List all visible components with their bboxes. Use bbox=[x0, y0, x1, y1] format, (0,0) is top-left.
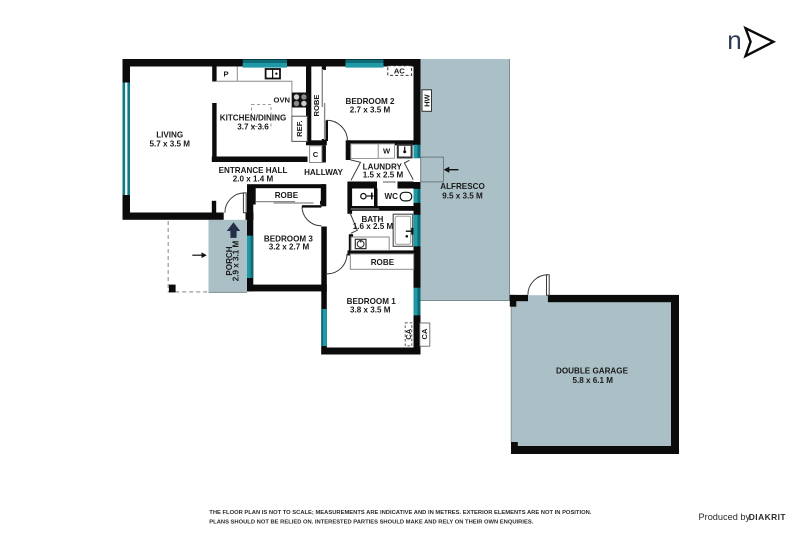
svg-text:3.8 x 3.5 M: 3.8 x 3.5 M bbox=[350, 305, 391, 314]
svg-text:3.7 x 3.6: 3.7 x 3.6 bbox=[237, 122, 269, 131]
svg-text:Produced by: Produced by bbox=[699, 512, 751, 522]
svg-text:3.2 x 2.7 M: 3.2 x 2.7 M bbox=[269, 242, 310, 251]
svg-text:WC: WC bbox=[385, 192, 399, 201]
svg-text:DIAKRIT: DIAKRIT bbox=[749, 512, 787, 522]
svg-text:REF.: REF. bbox=[295, 120, 304, 136]
svg-text:THE FLOOR PLAN IS NOT TO SCALE: THE FLOOR PLAN IS NOT TO SCALE; MEASUREM… bbox=[209, 510, 591, 516]
svg-text:ROBE: ROBE bbox=[275, 191, 299, 200]
svg-text:5.7 x 3.5 M: 5.7 x 3.5 M bbox=[149, 139, 190, 148]
svg-text:1.5 x 2.5 M: 1.5 x 2.5 M bbox=[363, 170, 404, 179]
svg-text:LIVING: LIVING bbox=[156, 130, 183, 139]
svg-text:DOUBLE GARAGE: DOUBLE GARAGE bbox=[556, 366, 629, 375]
svg-text:P: P bbox=[223, 70, 228, 79]
svg-text:2.0 x 1.4 M: 2.0 x 1.4 M bbox=[233, 174, 274, 183]
svg-text:HALLWAY: HALLWAY bbox=[304, 168, 343, 177]
svg-text:AC: AC bbox=[394, 67, 405, 76]
svg-text:ROBE: ROBE bbox=[312, 95, 321, 117]
svg-text:2.7 x 3.5 M: 2.7 x 3.5 M bbox=[350, 105, 391, 114]
svg-text:HW: HW bbox=[422, 93, 431, 106]
svg-text:PLANS SHOULD NOT BE RELIED ON.: PLANS SHOULD NOT BE RELIED ON. INTERESTE… bbox=[209, 519, 533, 525]
svg-text:1.6 x 2.5 M: 1.6 x 2.5 M bbox=[353, 222, 394, 231]
svg-text:n: n bbox=[727, 25, 741, 55]
svg-text:2.9 x 3.1 M: 2.9 x 3.1 M bbox=[232, 240, 241, 281]
svg-text:OVN: OVN bbox=[274, 96, 290, 105]
svg-text:ALFRESCO: ALFRESCO bbox=[440, 182, 485, 191]
svg-text:CA: CA bbox=[420, 328, 429, 339]
svg-text:9.5 x 3.5 M: 9.5 x 3.5 M bbox=[442, 191, 483, 200]
svg-text:KITCHEN/DINING: KITCHEN/DINING bbox=[220, 113, 287, 122]
svg-text:W: W bbox=[383, 147, 391, 156]
svg-text:C: C bbox=[313, 150, 319, 159]
svg-text:CA: CA bbox=[404, 328, 413, 339]
svg-text:ROBE: ROBE bbox=[371, 258, 395, 267]
svg-text:5.8 x 6.1 M: 5.8 x 6.1 M bbox=[573, 376, 614, 385]
